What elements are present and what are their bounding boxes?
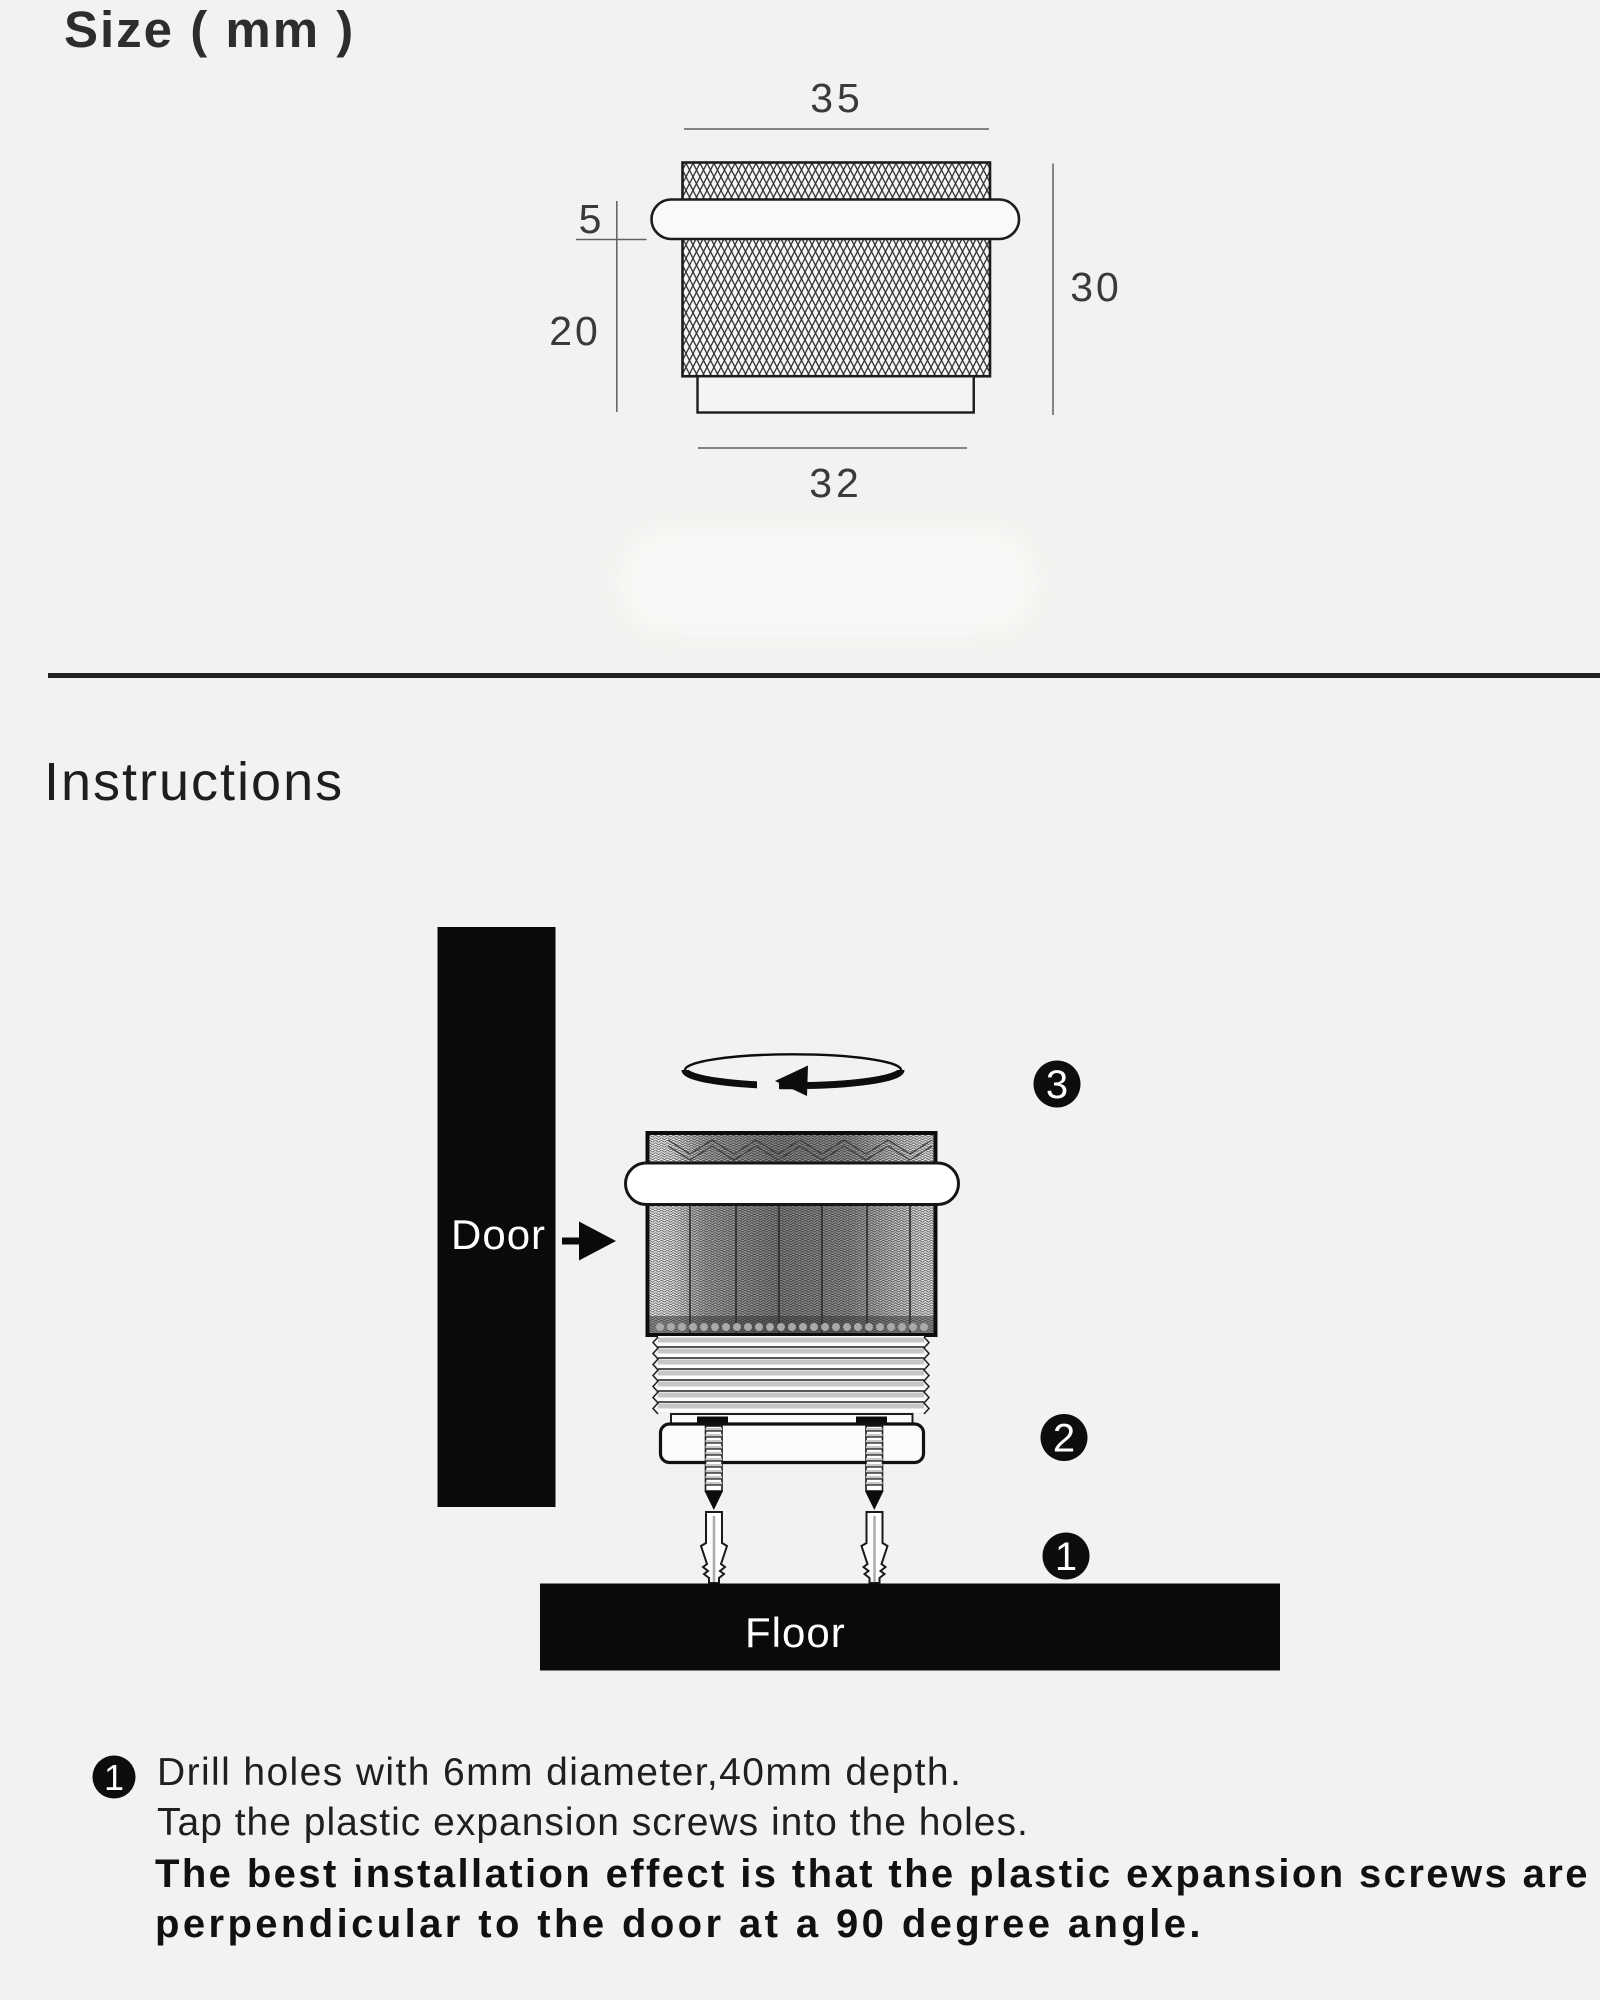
svg-text:35: 35: [810, 75, 864, 121]
svg-text:Floor: Floor: [745, 1609, 846, 1656]
svg-text:3: 3: [1046, 1063, 1068, 1107]
svg-text:5: 5: [579, 196, 602, 242]
svg-text:30: 30: [1070, 264, 1122, 310]
svg-text:Door: Door: [451, 1211, 546, 1258]
svg-text:32: 32: [809, 460, 863, 506]
svg-text:1: 1: [104, 1757, 124, 1798]
svg-text:1: 1: [1055, 1535, 1077, 1579]
svg-text:2: 2: [1053, 1417, 1075, 1461]
svg-text:20: 20: [549, 308, 601, 354]
